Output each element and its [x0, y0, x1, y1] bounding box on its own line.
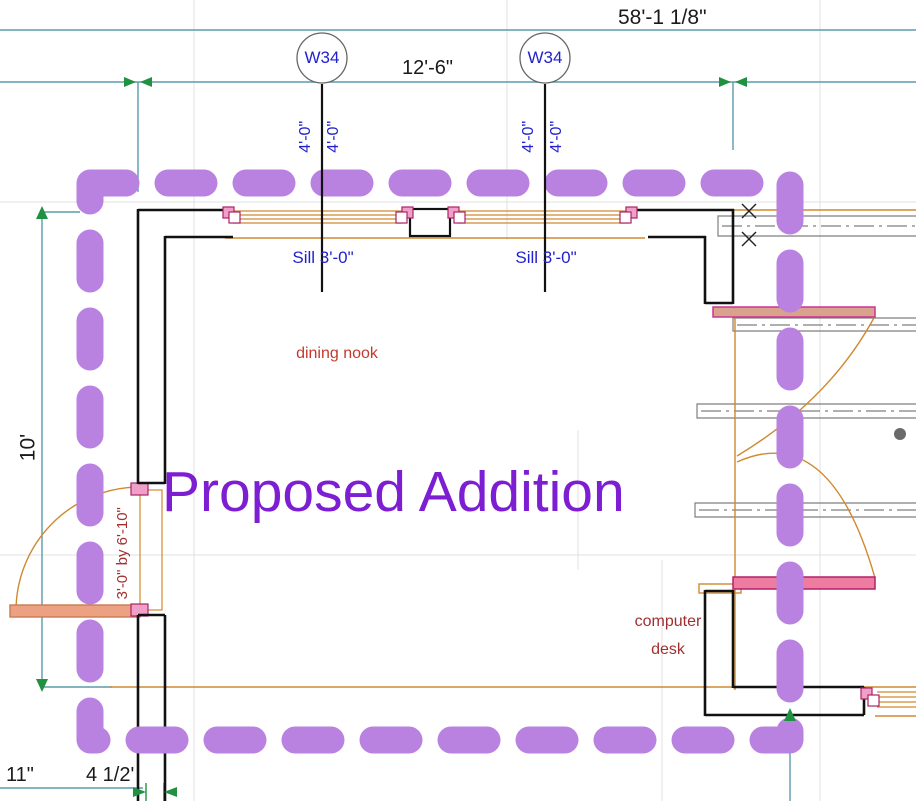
window-sill-2-text[interactable]: Sill 3'-0"	[481, 249, 611, 268]
post-marker-dot[interactable]	[894, 428, 906, 440]
room-label-dining-nook[interactable]: dining nook	[267, 345, 407, 363]
window-2-glazing[interactable]	[458, 211, 628, 223]
window-tag-2-text[interactable]: W34	[515, 49, 575, 68]
left-door-jamb-top	[131, 483, 148, 495]
dim-overall-width-text[interactable]: 58'-1 1/8"	[618, 6, 707, 29]
window-offset-text-3[interactable]: 4'-0"	[520, 102, 538, 172]
cad-floorplan-canvas[interactable]: D	[0, 0, 916, 801]
left-door-frame[interactable]	[140, 490, 162, 610]
dim-window-spacing-text[interactable]: 12'-6"	[402, 57, 453, 79]
wall-pier-between-windows[interactable]	[410, 209, 450, 236]
window-1-glazing[interactable]	[233, 211, 403, 223]
dim-bottom-wall-text[interactable]: 4 1/2'	[86, 764, 134, 786]
window-sill-1-text[interactable]: Sill 3'-0"	[258, 249, 388, 268]
proposed-addition-title[interactable]: Proposed Addition	[162, 461, 625, 524]
door-header-bar-lower[interactable]	[733, 577, 875, 589]
arrow-down-left-dim	[36, 679, 48, 692]
dim-left-height-text[interactable]: 10'	[16, 417, 39, 479]
label-desk[interactable]: desk	[608, 641, 728, 659]
floorplan-drawing: D	[0, 0, 916, 801]
dim-bottom-offset-text[interactable]: 11"	[6, 764, 34, 786]
right-door-swing-upper[interactable]	[737, 316, 875, 456]
window-offset-text-1[interactable]: 4'-0"	[297, 102, 315, 172]
existing-walls-gray[interactable]	[695, 216, 916, 517]
right-door-swing-lower[interactable]	[737, 453, 875, 578]
window-offset-text-4[interactable]: 4'-0"	[548, 102, 566, 172]
window-tag-1-text[interactable]: W34	[292, 49, 352, 68]
window-3-glazing[interactable]	[877, 692, 916, 707]
label-computer[interactable]: computer	[608, 613, 728, 631]
door-size-text[interactable]: 3'-0" by 6'-10"	[115, 473, 132, 633]
windows[interactable]	[223, 207, 916, 707]
window-offset-text-2[interactable]: 4'-0"	[325, 102, 343, 172]
